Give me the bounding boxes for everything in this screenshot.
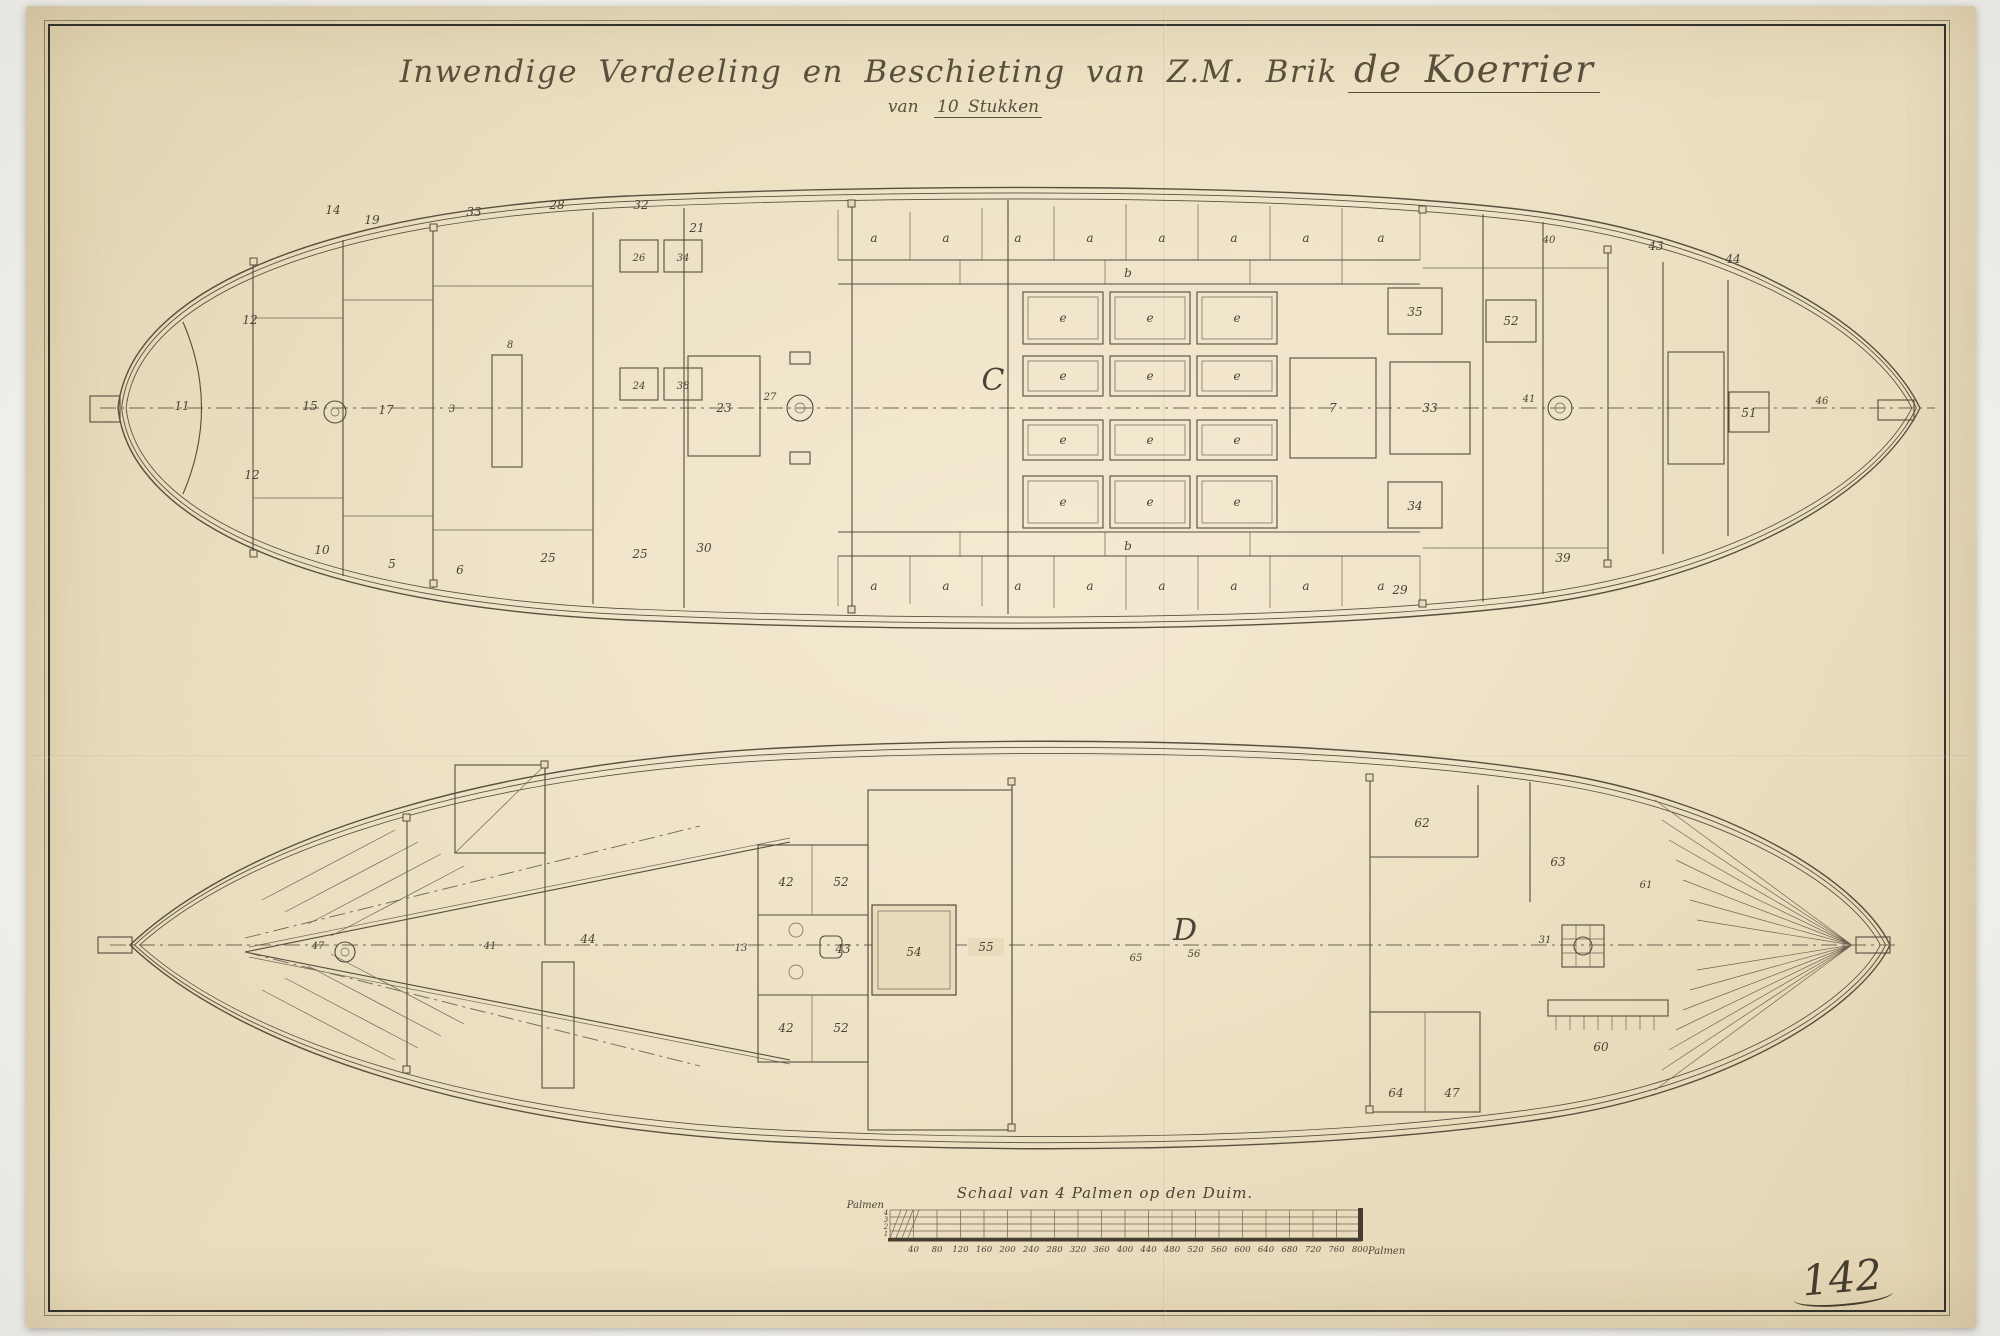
plan-label: 62 — [1414, 816, 1429, 830]
plan-label: 31 — [1539, 935, 1552, 946]
scale-bar-title: Schaal van 4 Palmen op den Duim. — [957, 1184, 1253, 1202]
bulkheads-upper — [253, 200, 1728, 614]
scale-tick-label: 760 — [1328, 1245, 1345, 1255]
plan-label: 41 — [483, 941, 497, 952]
plan-label: 8 — [507, 340, 513, 351]
labels-lower: D566547444142524342521354556263613160644… — [311, 816, 1653, 1100]
plan-label: a — [1014, 231, 1021, 245]
plan-label: 54 — [906, 945, 921, 959]
plan-label: 60 — [1593, 1040, 1609, 1054]
scale-tick-label: 520 — [1187, 1245, 1204, 1255]
plan-label: 24 — [632, 381, 646, 392]
plan-label: e — [1146, 311, 1153, 325]
scale-tick-labels: 4080120160200240280320360400440480520560… — [907, 1245, 1369, 1255]
scale-tick-label: 320 — [1070, 1245, 1087, 1255]
plan-label: a — [870, 579, 877, 593]
plan-label: 13 — [735, 943, 748, 954]
ship-plan-drawing: aaaaaaaabaaaaaaaabeeeeeeeeeeeeC141933283… — [0, 0, 2000, 1336]
labels-upper: aaaaaaaabaaaaaaaabeeeeeeeeeeeeC141933283… — [174, 198, 1829, 597]
plan-label: a — [1230, 579, 1237, 593]
plan-label: e — [1233, 433, 1240, 447]
plan-label: 27 — [763, 392, 777, 403]
title-block: Inwendige Verdeeling en Beschieting van … — [0, 48, 2000, 117]
plan-label: 43 — [1647, 239, 1664, 253]
plan-label: 47 — [311, 941, 325, 952]
plan-label: 35 — [1407, 305, 1422, 319]
drawing-subtitle: van 10 Stukken — [0, 97, 2000, 117]
plan-label: 7 — [1329, 401, 1337, 415]
scale-tick-label: 360 — [1093, 1245, 1110, 1255]
bow-breasthooks — [245, 826, 790, 1066]
scale-tick-label: 400 — [1116, 1245, 1134, 1255]
rooms-upper — [620, 240, 1769, 528]
plan-label: e — [1146, 495, 1153, 509]
scale-sub-digits: 4321 — [883, 1209, 889, 1238]
plan-label: a — [1302, 231, 1309, 245]
stairways-lower — [455, 765, 574, 1088]
subtitle-value: 10 Stukken — [934, 97, 1042, 118]
plan-lower-deck: D566547444142524342521354556263613160644… — [98, 741, 1900, 1148]
plan-label: e — [1059, 433, 1066, 447]
plan-label: a — [1158, 579, 1165, 593]
plan-label: 14 — [325, 203, 340, 217]
scale-tick-label: 800 — [1352, 1245, 1369, 1255]
plan-label: e — [1146, 433, 1153, 447]
plan-label: C — [982, 363, 1005, 398]
plan-label: 25 — [539, 551, 555, 565]
stairways-upper — [492, 352, 1724, 467]
plan-label: b — [1124, 266, 1132, 280]
plan-label: a — [1086, 579, 1093, 593]
plan-label: 23 — [715, 401, 732, 415]
plan-label: 39 — [1555, 551, 1571, 565]
mast-and-capstan-circles — [324, 395, 1572, 423]
plan-label: 63 — [1550, 855, 1566, 869]
plan-label: a — [1302, 579, 1309, 593]
plan-label: 52 — [1503, 314, 1518, 328]
scale-tick-label: 440 — [1139, 1245, 1157, 1255]
drawing-title: Inwendige Verdeeling en Beschieting van … — [0, 48, 2000, 91]
scale-tick-label: 680 — [1281, 1245, 1298, 1255]
plan-label: 30 — [696, 541, 712, 555]
plan-label: a — [1230, 231, 1237, 245]
plan-label: a — [1086, 231, 1093, 245]
scale-tick-label: 480 — [1163, 1245, 1181, 1255]
plan-label: 15 — [302, 399, 317, 413]
photographed-ship-plan: aaaaaaaabaaaaaaaabeeeeeeeeeeeeC141933283… — [0, 0, 2000, 1336]
scale-tick-label: 40 — [907, 1245, 919, 1255]
plan-label: 12 — [242, 313, 257, 327]
plan-label: 34 — [677, 253, 690, 264]
scale-bar-baseline — [888, 1238, 1362, 1242]
plan-label: 21 — [688, 221, 704, 235]
scale-tick-label: 160 — [976, 1245, 993, 1255]
plan-label: 26 — [632, 253, 646, 264]
plan-label: 11 — [174, 399, 189, 413]
plan-label: 10 — [314, 543, 330, 557]
plan-label: 46 — [1815, 396, 1829, 407]
plan-label: e — [1059, 495, 1066, 509]
plan-label: a — [1377, 579, 1384, 593]
scale-bar: Schaal van 4 Palmen op den Duim. Palmen … — [846, 1184, 1406, 1257]
plan-label: a — [870, 231, 877, 245]
scale-tick-label: 120 — [952, 1245, 969, 1255]
plan-label: 33 — [1422, 401, 1438, 415]
plan-label: 42 — [777, 1021, 793, 1035]
scale-tick-label: 600 — [1234, 1245, 1251, 1255]
scale-tick-label: 280 — [1045, 1245, 1063, 1255]
plan-label: 52 — [833, 875, 848, 889]
scale-tick-label: 240 — [1022, 1245, 1040, 1255]
scale-unit-left: Palmen — [846, 1200, 884, 1211]
plan-label: 19 — [364, 213, 380, 227]
scale-tick-label: 560 — [1211, 1245, 1228, 1255]
plan-label: 44 — [1724, 252, 1740, 266]
scale-tick-label: 720 — [1305, 1245, 1322, 1255]
plan-label: e — [1233, 311, 1240, 325]
plan-label: 1 — [884, 1230, 888, 1238]
storeroom-cluster — [758, 845, 868, 1062]
plan-label: a — [942, 231, 949, 245]
scale-tick-label: 200 — [998, 1245, 1016, 1255]
plan-label: 38 — [677, 381, 690, 392]
plan-label: 64 — [1388, 1086, 1403, 1100]
plan-label: 29 — [1391, 583, 1408, 597]
plan-label: e — [1059, 311, 1066, 325]
plan-label: 28 — [548, 198, 565, 212]
plan-label: e — [1146, 369, 1153, 383]
plan-label: a — [1158, 231, 1165, 245]
plan-label: 52 — [833, 1021, 848, 1035]
plan-upper-deck: aaaaaaaabaaaaaaaabeeeeeeeeeeeeC141933283… — [90, 187, 1935, 628]
plan-label: 12 — [244, 468, 259, 482]
plan-label: 5 — [388, 557, 396, 571]
plan-label: 47 — [1443, 1086, 1460, 1100]
scale-unit-right: Palmen — [1367, 1246, 1405, 1257]
plan-label: 65 — [1130, 953, 1143, 964]
plan-label: b — [1124, 539, 1132, 553]
plan-label: 3 — [449, 404, 455, 415]
plan-label: 43 — [834, 942, 851, 956]
plan-label: 42 — [777, 875, 793, 889]
ship-name: de Koerrier — [1348, 48, 1600, 93]
plan-label: 41 — [1522, 394, 1536, 405]
plan-label: 51 — [1741, 406, 1756, 420]
plan-label: 6 — [456, 563, 464, 577]
scale-tick-label: 640 — [1258, 1245, 1275, 1255]
plan-label: e — [1233, 369, 1240, 383]
plan-label: 44 — [579, 932, 595, 946]
aft-hold-fittings — [1370, 785, 1668, 1112]
plan-label: 40 — [1542, 235, 1556, 246]
title-text: Inwendige Verdeeling en Beschieting van … — [400, 54, 1338, 90]
plan-label: 32 — [633, 198, 648, 212]
plan-label: a — [1377, 231, 1384, 245]
scale-tick-label: 80 — [932, 1245, 943, 1255]
plan-label: a — [1014, 579, 1021, 593]
scale-bar-endcap — [1358, 1208, 1363, 1241]
plan-label: e — [1059, 369, 1066, 383]
plan-label: 61 — [1640, 880, 1653, 891]
plan-label: 56 — [1188, 949, 1201, 960]
plan-label: 17 — [378, 403, 394, 417]
plan-label: 34 — [1407, 499, 1422, 513]
plan-label: 55 — [978, 940, 993, 954]
plan-label: 25 — [631, 547, 647, 561]
planked-hold-area — [868, 790, 1012, 1130]
subtitle-prefix: van — [888, 97, 919, 117]
plan-label: a — [942, 579, 949, 593]
grating-grid — [1023, 292, 1277, 528]
plan-label: 33 — [466, 205, 482, 219]
plan-label: e — [1233, 495, 1240, 509]
plan-label: D — [1172, 913, 1197, 948]
